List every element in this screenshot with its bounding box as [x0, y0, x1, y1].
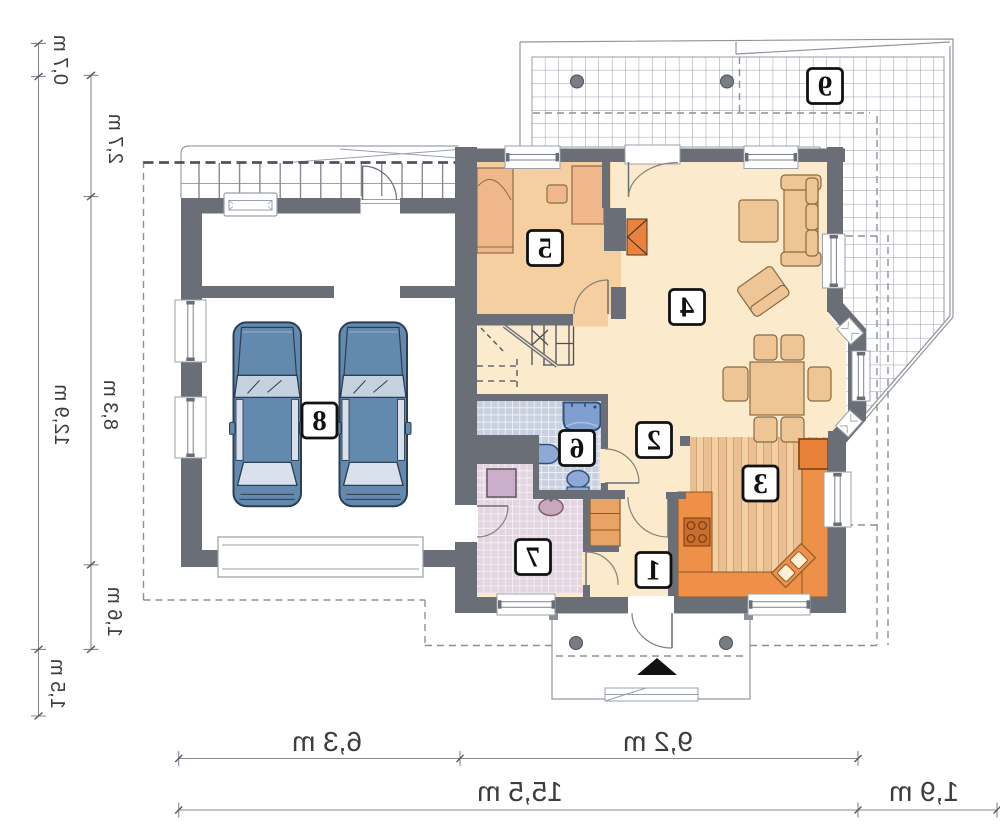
- svg-text:5: 5: [538, 233, 553, 265]
- svg-text:8,3 m: 8,3 m: [99, 380, 121, 430]
- svg-text:1,5 m: 1,5 m: [46, 659, 68, 709]
- svg-text:0,7 m: 0,7 m: [49, 35, 71, 85]
- svg-text:7: 7: [526, 542, 541, 574]
- svg-text:8: 8: [312, 405, 327, 437]
- svg-text:6,3 m: 6,3 m: [292, 726, 362, 757]
- svg-text:9: 9: [818, 71, 833, 103]
- svg-text:3: 3: [753, 468, 768, 500]
- svg-text:9,2 m: 9,2 m: [623, 726, 693, 757]
- svg-text:2: 2: [647, 425, 662, 457]
- svg-text:6: 6: [570, 433, 585, 465]
- svg-text:12,9 m: 12,9 m: [50, 384, 72, 445]
- svg-text:4: 4: [680, 292, 695, 324]
- svg-text:15,5 m: 15,5 m: [477, 776, 563, 807]
- svg-text:1,9 m: 1,9 m: [889, 776, 959, 807]
- svg-text:2,7 m: 2,7 m: [104, 114, 126, 164]
- svg-text:1,6 m: 1,6 m: [103, 587, 125, 637]
- svg-text:1: 1: [646, 555, 661, 587]
